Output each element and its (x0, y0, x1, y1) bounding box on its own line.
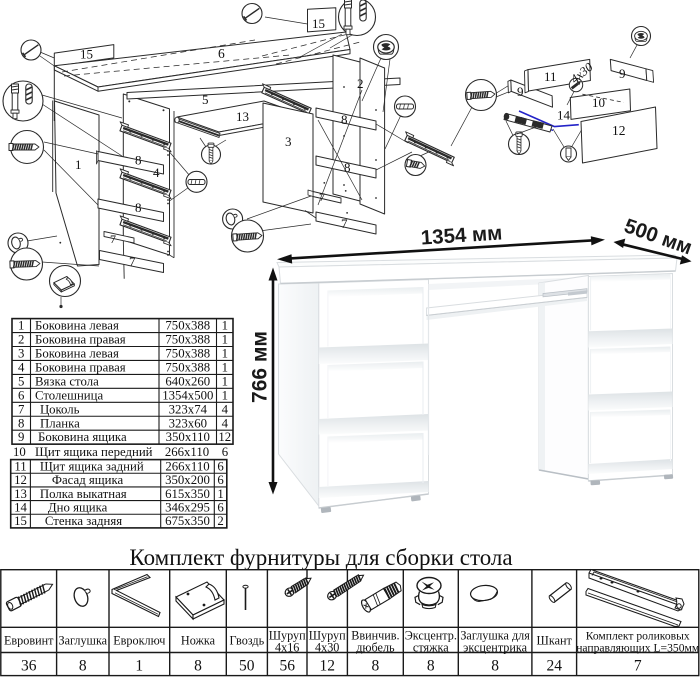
svg-text:9: 9 (18, 430, 24, 444)
svg-text:8: 8 (427, 658, 435, 675)
svg-text:4х16: 4х16 (275, 641, 299, 655)
svg-text:Боковина левая: Боковина левая (35, 319, 119, 333)
svg-text:6: 6 (217, 500, 224, 514)
svg-text:10: 10 (592, 95, 605, 110)
svg-text:7: 7 (634, 658, 642, 675)
svg-text:Заглушка: Заглушка (58, 634, 107, 648)
svg-text:12: 12 (319, 658, 335, 675)
svg-text:15: 15 (80, 47, 93, 62)
svg-text:3: 3 (18, 347, 24, 361)
svg-text:Евроключ: Евроключ (113, 634, 165, 648)
svg-text:6: 6 (217, 473, 224, 487)
svg-text:13: 13 (236, 109, 249, 124)
svg-text:8: 8 (194, 658, 202, 675)
svg-text:1: 1 (75, 157, 82, 172)
svg-text:4х30: 4х30 (315, 641, 339, 655)
svg-text:7: 7 (18, 402, 25, 416)
svg-text:Гвоздь: Гвоздь (229, 634, 264, 648)
svg-text:640х260: 640х260 (165, 374, 210, 388)
svg-text:Цоколь: Цоколь (40, 402, 80, 416)
svg-text:10: 10 (13, 445, 26, 459)
svg-text:1354х500: 1354х500 (162, 388, 213, 402)
svg-text:2: 2 (217, 514, 223, 528)
svg-text:11: 11 (544, 69, 557, 84)
svg-text:Евровинт: Евровинт (4, 634, 54, 648)
svg-text:5: 5 (18, 374, 24, 388)
svg-text:323х74: 323х74 (169, 402, 208, 416)
svg-text:766 мм: 766 мм (249, 331, 272, 403)
svg-text:56: 56 (279, 658, 295, 675)
svg-text:350х200: 350х200 (165, 473, 210, 487)
svg-text:11: 11 (14, 460, 26, 474)
svg-text:14: 14 (14, 500, 27, 514)
svg-text:Боковина ящика: Боковина ящика (38, 430, 127, 444)
svg-text:Вязка стола: Вязка стола (35, 374, 99, 388)
svg-text:8: 8 (79, 658, 87, 675)
svg-text:7: 7 (341, 216, 348, 231)
svg-text:8: 8 (135, 153, 142, 168)
svg-text:12: 12 (612, 123, 626, 138)
svg-text:8: 8 (372, 658, 380, 675)
svg-text:8: 8 (18, 416, 24, 430)
svg-text:Столешница: Столешница (35, 388, 103, 402)
svg-text:266х110: 266х110 (165, 460, 209, 474)
svg-text:Боковина правая: Боковина правая (35, 360, 126, 374)
svg-text:7: 7 (110, 232, 116, 246)
svg-text:7: 7 (129, 254, 136, 269)
svg-text:Стенка задняя: Стенка задняя (45, 514, 122, 528)
svg-text:Боковина левая: Боковина левая (35, 347, 119, 361)
svg-text:1: 1 (18, 319, 24, 333)
svg-text:15: 15 (312, 16, 325, 31)
svg-text:350х110: 350х110 (166, 430, 210, 444)
svg-text:Комплект фурнитуры для сборки: Комплект фурнитуры для сборки стола (129, 545, 512, 570)
svg-text:Шкант: Шкант (537, 634, 573, 648)
svg-text:750х388: 750х388 (165, 360, 210, 374)
svg-text:8: 8 (135, 200, 142, 215)
svg-text:Планка: Планка (40, 416, 80, 430)
svg-text:эксцентрика: эксцентрика (463, 641, 528, 655)
svg-text:2: 2 (357, 76, 364, 91)
svg-text:5: 5 (202, 92, 209, 107)
svg-text:6: 6 (217, 460, 224, 474)
svg-text:14: 14 (557, 108, 571, 123)
svg-text:12: 12 (218, 430, 231, 444)
svg-text:323х60: 323х60 (169, 416, 207, 430)
svg-text:266х110: 266х110 (165, 445, 209, 459)
svg-text:15: 15 (14, 514, 27, 528)
svg-text:Ножка: Ножка (181, 634, 216, 648)
svg-text:6: 6 (222, 445, 229, 459)
svg-text:7: 7 (319, 190, 325, 204)
svg-text:1: 1 (222, 319, 228, 333)
svg-text:1: 1 (222, 360, 228, 374)
svg-text:750х388: 750х388 (165, 347, 210, 361)
svg-text:1: 1 (222, 347, 228, 361)
svg-text:направляющих L=350мм: направляющих L=350мм (576, 642, 700, 655)
svg-text:8: 8 (341, 112, 348, 127)
svg-text:24: 24 (546, 658, 562, 675)
svg-text:Боковина правая: Боковина правая (35, 333, 126, 347)
svg-text:дюбель: дюбель (356, 641, 395, 655)
svg-text:750х388: 750х388 (165, 319, 210, 333)
svg-text:36: 36 (21, 658, 37, 675)
svg-text:13: 13 (14, 487, 27, 501)
svg-text:Дно ящика: Дно ящика (48, 500, 108, 514)
svg-text:Щит ящика задний: Щит ящика задний (40, 460, 144, 474)
svg-text:3: 3 (285, 134, 292, 149)
svg-text:Полка выкатная: Полка выкатная (40, 487, 127, 501)
svg-text:12: 12 (14, 473, 27, 487)
svg-text:675х350: 675х350 (165, 514, 210, 528)
svg-text:9: 9 (517, 84, 524, 99)
svg-text:4: 4 (222, 402, 229, 416)
svg-text:4: 4 (222, 416, 229, 430)
svg-text:4: 4 (18, 360, 25, 374)
svg-text:Фасад ящика: Фасад ящика (52, 473, 124, 487)
svg-text:1: 1 (222, 388, 228, 402)
svg-text:6: 6 (218, 46, 225, 61)
svg-text:6: 6 (18, 388, 25, 402)
svg-text:Щит ящика передний: Щит ящика передний (35, 445, 153, 459)
svg-text:4: 4 (153, 165, 160, 180)
svg-text:50: 50 (239, 658, 255, 675)
svg-text:1: 1 (135, 658, 143, 675)
svg-text:750х388: 750х388 (165, 333, 210, 347)
svg-text:8: 8 (491, 658, 499, 675)
svg-text:346х295: 346х295 (165, 500, 210, 514)
svg-text:1: 1 (217, 487, 223, 501)
svg-text:9: 9 (619, 66, 626, 81)
svg-text:2: 2 (18, 333, 24, 347)
svg-text:стяжка: стяжка (413, 641, 449, 655)
svg-text:615х350: 615х350 (165, 487, 210, 501)
svg-text:1: 1 (222, 333, 228, 347)
svg-text:1: 1 (222, 374, 228, 388)
